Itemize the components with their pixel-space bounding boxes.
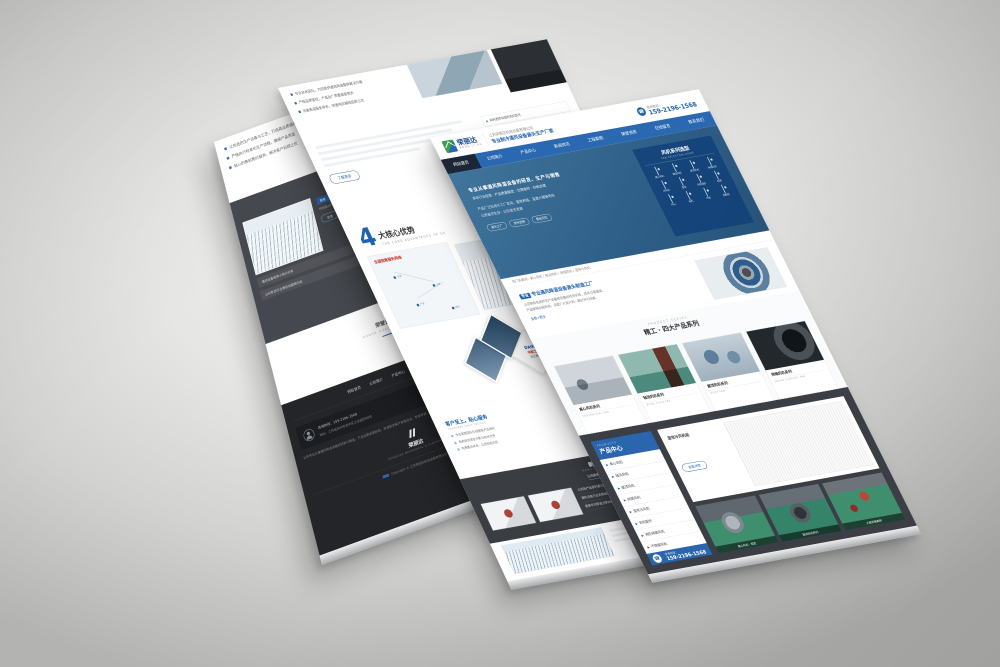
cell-label: 风口 <box>665 201 683 207</box>
map-dot-label: 山东 <box>435 282 441 286</box>
map-dot-label: 江苏 <box>396 274 402 278</box>
cooling-pad-photo <box>723 401 873 486</box>
photo-caption: 工程安装案例 <box>842 513 905 530</box>
map-dot-label: 广东 <box>419 302 425 306</box>
bullet-square-icon <box>224 147 227 150</box>
photo-caption: 轴流风机系列 <box>779 524 842 541</box>
map-dot: 四川 <box>451 307 455 310</box>
bullet-square-icon <box>298 111 301 114</box>
category-label: 轴流风机 <box>615 472 630 478</box>
featured-product-name: 湿帘冷风机组 <box>666 427 718 441</box>
logo-text-block[interactable]: 荣丽达 RONG LI DA <box>456 136 483 150</box>
photo-caption: 离心风机 · 现货 <box>715 536 778 553</box>
map-dot: 江苏 <box>393 276 397 279</box>
cell-label: 轴流风机 <box>668 170 686 176</box>
arrow-icon: ▶ <box>486 119 489 122</box>
map-dot-label: 四川 <box>455 305 461 309</box>
footer-link[interactable]: 网站首页 <box>347 385 362 395</box>
footer-link[interactable]: 公司简介 <box>369 377 384 387</box>
banner-tag: 支持定制 <box>508 217 531 227</box>
banner-tag: 源头工厂 <box>486 222 509 232</box>
icp-badge <box>382 474 389 479</box>
category-label: 离心风机 <box>609 460 624 466</box>
person-icon <box>302 428 315 443</box>
banner-copy: 专业从事通风降温设备的研发、生产与销售 多年行业经验 · 产品质量稳定 · 交期… <box>467 163 621 231</box>
cell-label: 排烟风机 <box>704 164 722 170</box>
selection-grid: 离心风机 轴流风机 屋顶风机 排烟风机 冷风机 湿帘 风机配件 风阀 风口 电机… <box>647 156 735 208</box>
cell-label: 叶轮 <box>700 195 718 201</box>
banner-tag: 售后无忧 <box>531 213 554 223</box>
cell-label: 冷风机 <box>658 187 676 193</box>
bullet-square-icon <box>290 93 293 96</box>
footer-logo-icon <box>407 427 419 438</box>
faq-text: 如何选择合适的风机型号 <box>489 113 521 122</box>
cell-label: 屋顶风机 <box>686 167 704 173</box>
category-label: 湿帘冷风机 <box>632 507 650 514</box>
news-photo <box>527 487 584 522</box>
category-label: 屋顶风机 <box>621 484 636 490</box>
cell-label: 控制柜 <box>717 192 735 198</box>
fan-selection-panel: 风机系列选型 FAN SELECTION GUIDE 离心风机 轴流风机 屋顶风… <box>632 136 754 237</box>
mockup-scene: { "colors":{"accent_blue":"#2a66ad","dee… <box>0 0 1000 667</box>
bullet-square-icon <box>227 157 230 160</box>
category-label: 不锈钢风机 <box>650 542 668 549</box>
cell-label: 风阀 <box>710 178 728 184</box>
cell-label: 风机配件 <box>693 181 711 187</box>
category-label: 消防排烟风机 <box>644 529 665 536</box>
cell-label: 离心风机 <box>651 173 669 179</box>
cell-label: 湿帘 <box>675 184 693 190</box>
map-dot: 广东 <box>416 304 420 307</box>
cell-label: 电机 <box>682 198 700 204</box>
bullet-square-icon <box>229 166 232 169</box>
bullet-square-icon <box>457 448 460 451</box>
phone-icon: ☎ <box>651 553 663 563</box>
category-label: 排烟风机 <box>627 495 642 501</box>
bullet-square-icon <box>294 102 297 105</box>
equipment-photo <box>491 39 567 92</box>
bullet-square-icon <box>451 435 454 438</box>
category-label: 风机配件 <box>638 519 653 525</box>
footer-link[interactable]: 产品中心 <box>391 369 406 379</box>
detail-button[interactable]: 查看详情 <box>681 460 709 472</box>
feature-bullets: 专业技术团队，为您提供通风降温整体解决方案 严格品质管控，产品出厂质量层层把关 … <box>290 69 434 119</box>
bullet-square-icon <box>454 442 457 445</box>
news-photo <box>480 496 537 531</box>
map-dot: 山东 <box>432 284 436 287</box>
headline-em-badge: 专业 <box>519 293 532 300</box>
learn-more-button[interactable]: 了解更多 <box>328 170 361 185</box>
